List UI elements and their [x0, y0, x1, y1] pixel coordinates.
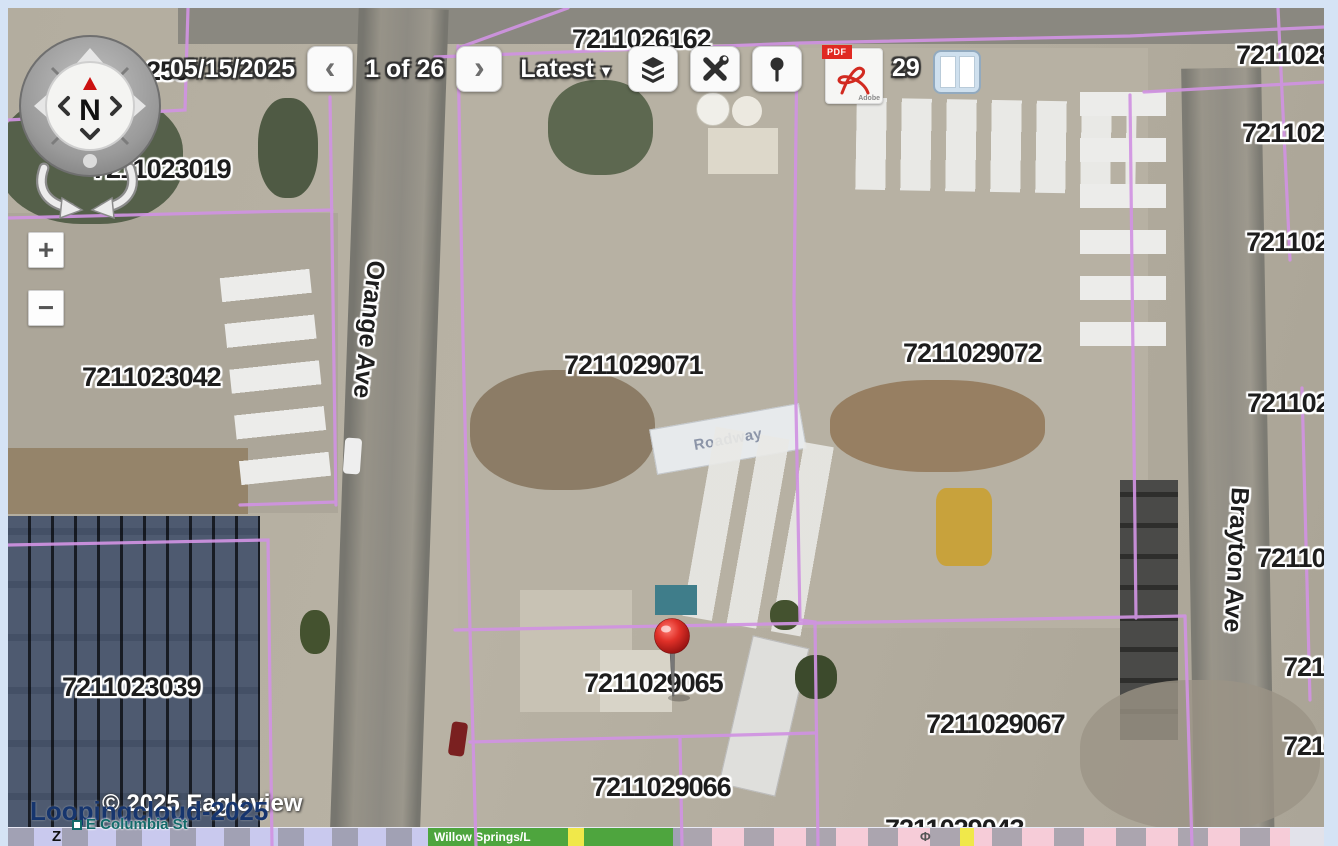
version-dropdown[interactable]: Latest ▾ — [520, 55, 610, 84]
obscured-parcel-fragment: 29 — [892, 54, 920, 83]
pin-button[interactable] — [752, 46, 802, 92]
chevron-left-icon: ‹ — [325, 51, 336, 83]
capture-date: 05/15/2025 — [170, 55, 295, 84]
parcel-label: 72110 — [1257, 543, 1324, 574]
parcel-label: 7211029072 — [903, 338, 1042, 369]
street-label-columbia: E Columbia St — [72, 816, 188, 833]
next-capture-button[interactable]: › — [456, 46, 502, 92]
split-view-button[interactable] — [933, 50, 981, 94]
pane-left — [940, 56, 956, 88]
parcel-label: 721102 — [1242, 118, 1324, 149]
parcel-label: 7211029066 — [592, 772, 731, 803]
street-sign-icon — [72, 820, 82, 830]
pdf-export-button[interactable]: PDF Adobe — [825, 48, 883, 104]
capture-page-indicator: 1 of 26 — [365, 55, 444, 84]
pushpin-icon — [764, 55, 790, 83]
parcel-label: 721102 — [1247, 388, 1324, 419]
version-dropdown-label: Latest — [520, 55, 594, 84]
parcel-label: 72110 — [1283, 652, 1324, 683]
parcel-label: 7211023042 — [82, 362, 221, 393]
pane-right — [959, 56, 975, 88]
map-toolbar: 05/15/2025 ‹ 1 of 26 › Latest ▾ — [170, 46, 802, 92]
prev-capture-button[interactable]: ‹ — [307, 46, 353, 92]
zoom-out-button[interactable]: − — [28, 290, 64, 326]
parcel-label: 721102 — [1246, 227, 1324, 258]
tools-button[interactable] — [690, 46, 740, 92]
layers-icon — [639, 55, 667, 83]
chevron-right-icon: › — [474, 51, 485, 83]
pan-down-dot[interactable] — [83, 154, 97, 168]
pdf-brand-label: Adobe — [858, 95, 880, 102]
map-viewport[interactable]: Roadway Z Willow Springs/L Φ — [8, 8, 1324, 846]
parcel-boundary-lines — [8, 8, 1324, 846]
map-pin[interactable] — [643, 596, 707, 706]
compass-pan-control[interactable]: N — [14, 28, 174, 228]
parcel-label: 72110 — [1283, 731, 1324, 762]
zoom-in-button[interactable]: + — [28, 232, 64, 268]
parcel-label: 7211029071 — [564, 350, 703, 381]
north-label: N — [79, 94, 101, 127]
tools-icon — [701, 55, 729, 83]
chevron-down-icon: ▾ — [602, 61, 610, 81]
parcel-label: 7211028 — [1236, 40, 1324, 71]
parcel-label: 7211023039 — [62, 672, 201, 703]
parcel-label: 7211029067 — [926, 709, 1065, 740]
layers-button[interactable] — [628, 46, 678, 92]
